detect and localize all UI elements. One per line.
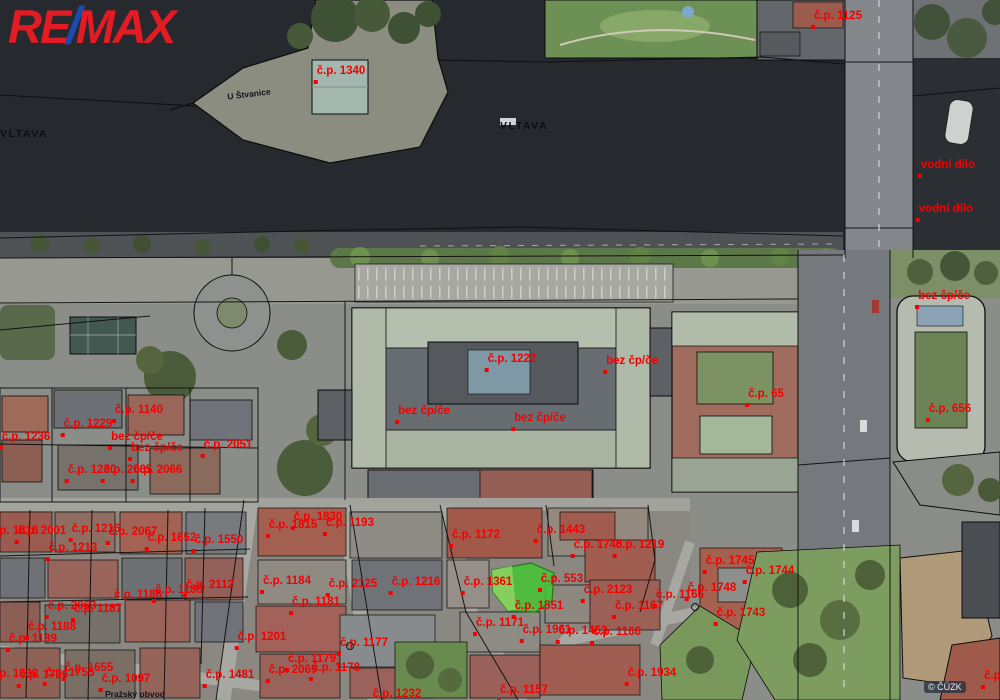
label-text: č.p. 1181 bbox=[292, 596, 340, 608]
label-text: bez čp/če bbox=[606, 355, 658, 367]
label-marker-dot bbox=[571, 554, 575, 558]
parcel-label: č.p. 1216 bbox=[392, 577, 441, 589]
label-marker-dot bbox=[266, 534, 270, 538]
label-text: č.p. 1748 bbox=[688, 582, 737, 594]
label-text: č.p. 1171 bbox=[476, 617, 524, 629]
parcel-label: č.p. 1744 bbox=[746, 566, 795, 578]
label-text: Pražský obvod bbox=[105, 689, 165, 699]
label-marker-dot bbox=[15, 540, 19, 544]
parcel-label: vodní dílo bbox=[919, 204, 973, 216]
parcel-label: č.p. 553 bbox=[541, 574, 583, 586]
label-marker-dot bbox=[511, 427, 515, 431]
parcel-label: č.p. 2066 bbox=[134, 465, 183, 477]
label-text: č.p. 1201 bbox=[238, 631, 287, 643]
label-text: č.p. 1481 bbox=[206, 669, 255, 681]
label-text: č.p. 1743 bbox=[717, 607, 766, 619]
label-marker-dot bbox=[309, 677, 313, 681]
label-text: vodní dílo bbox=[921, 159, 975, 171]
label-text: č.p. bbox=[984, 670, 1000, 682]
label-text: č.p. 2001 bbox=[18, 525, 67, 537]
label-marker-dot bbox=[145, 547, 149, 551]
parcel-label: č.p. 1125 bbox=[814, 11, 862, 23]
parcel-label: č.p. 1748 bbox=[688, 583, 737, 595]
parcel-label: č.p. 1166 bbox=[593, 627, 641, 639]
label-marker-dot bbox=[106, 541, 110, 545]
label-marker-dot bbox=[625, 682, 629, 686]
label-text: č.p. 1340 bbox=[317, 65, 366, 77]
parcel-label: bez čp/če bbox=[918, 291, 970, 303]
label-text: č.p. 1232 bbox=[373, 688, 422, 700]
label-text: č.p. 2066 bbox=[134, 464, 183, 476]
label-marker-dot bbox=[811, 25, 815, 29]
label-marker-dot bbox=[192, 549, 196, 553]
label-text: č.p. 1189 bbox=[9, 633, 57, 645]
label-text: č.p. 1744 bbox=[746, 565, 795, 577]
label-marker-dot bbox=[112, 419, 116, 423]
label-text: č.p. 1184 bbox=[263, 575, 311, 587]
label-text: č.p. 1187 bbox=[74, 603, 122, 615]
label-text: č.p. 1166 bbox=[593, 626, 641, 638]
label-marker-dot bbox=[745, 403, 749, 407]
label-marker-dot bbox=[128, 457, 132, 461]
parcel-label: č.p. 2123 bbox=[584, 585, 633, 597]
label-marker-dot bbox=[916, 218, 920, 222]
label-marker-dot bbox=[61, 433, 65, 437]
remax-logo: RE/MAX bbox=[8, 0, 174, 56]
parcel-label: č.p. 1172 bbox=[452, 530, 500, 542]
logo-max: MAX bbox=[76, 0, 174, 53]
label-marker-dot bbox=[291, 526, 295, 530]
label-text: bez čp/če bbox=[918, 290, 970, 302]
map-canvas[interactable]: VLTAVAVLTAVAU ŠtvanicePražský obvodč.p. … bbox=[0, 0, 1000, 700]
parcel-label: č.p. 1187 bbox=[74, 604, 122, 616]
label-marker-dot bbox=[201, 454, 205, 458]
label-marker-dot bbox=[235, 646, 239, 650]
label-marker-dot bbox=[538, 588, 542, 592]
label-marker-dot bbox=[99, 688, 103, 692]
label-text: č.p. 1185 bbox=[155, 584, 203, 596]
parcel-label: č.p. 1743 bbox=[717, 608, 766, 620]
label-text: č.p. 1551 bbox=[515, 600, 564, 612]
parcel-label: č.p. 1140 bbox=[115, 405, 163, 417]
label-marker-dot bbox=[45, 615, 49, 619]
cuzk-watermark: © ČÚZK bbox=[924, 681, 966, 693]
label-text: č.p. 1236 bbox=[2, 431, 51, 443]
label-text: č.p. 1097 bbox=[102, 673, 151, 685]
label-marker-dot bbox=[714, 622, 718, 626]
parcel-label: č.p. 1551 bbox=[515, 601, 564, 613]
label-marker-dot bbox=[203, 684, 207, 688]
parcel-label: č.p. 2069 bbox=[269, 665, 318, 677]
parcel-label: č.p. 1177 bbox=[340, 638, 388, 650]
parcel-label: č.p. 2051 bbox=[204, 440, 253, 452]
parcel-label: č.p. 656 bbox=[929, 404, 971, 416]
label-text: VLTAVA bbox=[500, 120, 548, 132]
label-text: č.p. 1125 bbox=[814, 10, 862, 22]
parcel-label: bez čp/če bbox=[131, 443, 183, 455]
label-text: č.p. 1550 bbox=[195, 534, 244, 546]
label-marker-dot bbox=[337, 652, 341, 656]
parcel-label: č.p. 1361 bbox=[464, 577, 513, 589]
label-text: č.p. 1193 bbox=[326, 517, 374, 529]
logo-re: RE bbox=[8, 0, 69, 53]
label-marker-dot bbox=[703, 570, 707, 574]
label-text: bez čp/če bbox=[398, 405, 450, 417]
parcel-label: č.p. 1201 bbox=[238, 632, 287, 644]
label-text: č.p. 1216 bbox=[392, 576, 441, 588]
label-marker-dot bbox=[603, 370, 607, 374]
parcel-label: č.p. 1219 bbox=[616, 540, 665, 552]
parcel-label: č.p. 1934 bbox=[628, 668, 677, 680]
label-text: bez čp/če bbox=[514, 412, 566, 424]
label-text: č.p. 1172 bbox=[452, 529, 500, 541]
label-marker-dot bbox=[314, 80, 318, 84]
label-text: č.p. 1178 bbox=[312, 662, 360, 674]
label-marker-dot bbox=[534, 539, 538, 543]
label-marker-dot bbox=[108, 446, 112, 450]
label-marker-dot bbox=[743, 580, 747, 584]
label-text: č.p. 1229 bbox=[64, 418, 113, 430]
label-text: U Štvanice bbox=[227, 86, 271, 101]
label-marker-dot bbox=[915, 305, 919, 309]
parcel-label: č.p. 1652 bbox=[148, 533, 197, 545]
parcel-label: č.p. 1038 bbox=[0, 669, 38, 681]
label-marker-dot bbox=[520, 639, 524, 643]
label-marker-dot bbox=[131, 479, 135, 483]
label-text: bez čp/če bbox=[131, 442, 183, 454]
label-marker-dot bbox=[389, 591, 393, 595]
label-marker-dot bbox=[0, 446, 3, 450]
label-marker-dot bbox=[289, 611, 293, 615]
parcel-label: č.p. 1185 bbox=[155, 585, 203, 597]
label-text: č.p. 1652 bbox=[148, 532, 197, 544]
parcel-label: č.p. 1340 bbox=[317, 66, 366, 78]
label-text: č.p. 1186 bbox=[114, 589, 162, 601]
parcel-label: č.p. 65 bbox=[748, 389, 784, 401]
label-text: č.p. 1361 bbox=[464, 576, 513, 588]
water-label: VLTAVA bbox=[500, 121, 548, 132]
label-text: č.p. 1038 bbox=[0, 668, 38, 680]
label-marker-dot bbox=[473, 632, 477, 636]
water-label: VLTAVA bbox=[0, 129, 48, 140]
parcel-label: č.p. 1097 bbox=[102, 674, 151, 686]
parcel-label: č.p. bbox=[984, 671, 1000, 683]
parcel-label: č.p. 1232 bbox=[373, 689, 422, 700]
label-text: č.p. 553 bbox=[541, 573, 583, 585]
label-marker-dot bbox=[918, 174, 922, 178]
parcel-label: č.p. 1178 bbox=[312, 663, 360, 675]
parcel-label: č.p. 1236 bbox=[2, 432, 51, 444]
label-marker-dot bbox=[612, 615, 616, 619]
parcel-label: č.p. 2001 bbox=[18, 526, 67, 538]
label-text: č.p. 2123 bbox=[584, 584, 633, 596]
label-marker-dot bbox=[17, 684, 21, 688]
label-marker-dot bbox=[46, 557, 50, 561]
parcel-label: č.p. 1186 bbox=[114, 590, 162, 602]
label-marker-dot bbox=[685, 597, 689, 601]
label-text: č.p. 1219 bbox=[616, 539, 665, 551]
street-label: Pražský obvod bbox=[105, 690, 165, 699]
parcel-label: č.p. 1189 bbox=[9, 634, 57, 646]
street-label: U Štvanice bbox=[227, 87, 271, 101]
label-marker-dot bbox=[43, 682, 47, 686]
label-marker-dot bbox=[260, 590, 264, 594]
label-marker-dot bbox=[461, 591, 465, 595]
label-marker-dot bbox=[65, 479, 69, 483]
label-text: č.p. 2125 bbox=[329, 578, 378, 590]
parcel-label: č.p. 1188 bbox=[28, 622, 76, 634]
label-text: vodní dílo bbox=[919, 203, 973, 215]
parcel-label: č.p. 1157 bbox=[500, 685, 548, 697]
label-marker-dot bbox=[653, 604, 657, 608]
label-marker-dot bbox=[556, 640, 560, 644]
parcel-label: č.p. 1443 bbox=[537, 525, 586, 537]
parcel-label: č.p. 1229 bbox=[64, 419, 113, 431]
label-marker-dot bbox=[613, 554, 617, 558]
parcel-label: č.p. 2125 bbox=[329, 579, 378, 591]
label-text: č.p. 1443 bbox=[537, 524, 586, 536]
label-text: č.p. 1177 bbox=[340, 637, 388, 649]
parcel-label: č.p. 1181 bbox=[292, 597, 340, 609]
label-text: č.p. 656 bbox=[929, 403, 971, 415]
label-text: č.p. 2069 bbox=[269, 664, 318, 676]
map-labels-layer: VLTAVAVLTAVAU ŠtvanicePražský obvodč.p. … bbox=[0, 0, 1000, 700]
parcel-label: bez čp/če bbox=[514, 413, 566, 425]
parcel-label: vodní dílo bbox=[921, 160, 975, 172]
label-marker-dot bbox=[395, 420, 399, 424]
parcel-label: č.p. 1193 bbox=[326, 518, 374, 530]
label-marker-dot bbox=[981, 685, 985, 689]
label-text: VLTAVA bbox=[0, 128, 48, 140]
label-marker-dot bbox=[266, 679, 270, 683]
label-marker-dot bbox=[926, 418, 930, 422]
parcel-label: č.p. 1481 bbox=[206, 670, 255, 682]
label-text: č.p. 1188 bbox=[28, 621, 76, 633]
label-text: č.p. 2051 bbox=[204, 439, 253, 451]
parcel-label: č.p. 1222 bbox=[488, 354, 537, 366]
label-text: č.p. 1140 bbox=[115, 404, 163, 416]
label-marker-dot bbox=[6, 648, 10, 652]
label-marker-dot bbox=[101, 479, 105, 483]
label-marker-dot bbox=[449, 544, 453, 548]
label-text: č.p. 1213 bbox=[49, 542, 98, 554]
parcel-label: č.p. 1184 bbox=[263, 576, 311, 588]
parcel-label: bez čp/če bbox=[398, 406, 450, 418]
label-marker-dot bbox=[590, 641, 594, 645]
label-marker-dot bbox=[581, 599, 585, 603]
label-text: č.p. 1157 bbox=[500, 684, 548, 696]
label-marker-dot bbox=[485, 368, 489, 372]
label-text: č.p. 1222 bbox=[488, 353, 537, 365]
label-text: č.p. 65 bbox=[748, 388, 784, 400]
label-marker-dot bbox=[323, 532, 327, 536]
label-marker-dot bbox=[69, 538, 73, 542]
label-text: č.p. 1934 bbox=[628, 667, 677, 679]
parcel-label: č.p. 1550 bbox=[195, 535, 244, 547]
parcel-label: č.p. 1213 bbox=[49, 543, 98, 555]
parcel-label: bez čp/če bbox=[606, 356, 658, 368]
parcel-label: č.p. 1171 bbox=[476, 618, 524, 630]
